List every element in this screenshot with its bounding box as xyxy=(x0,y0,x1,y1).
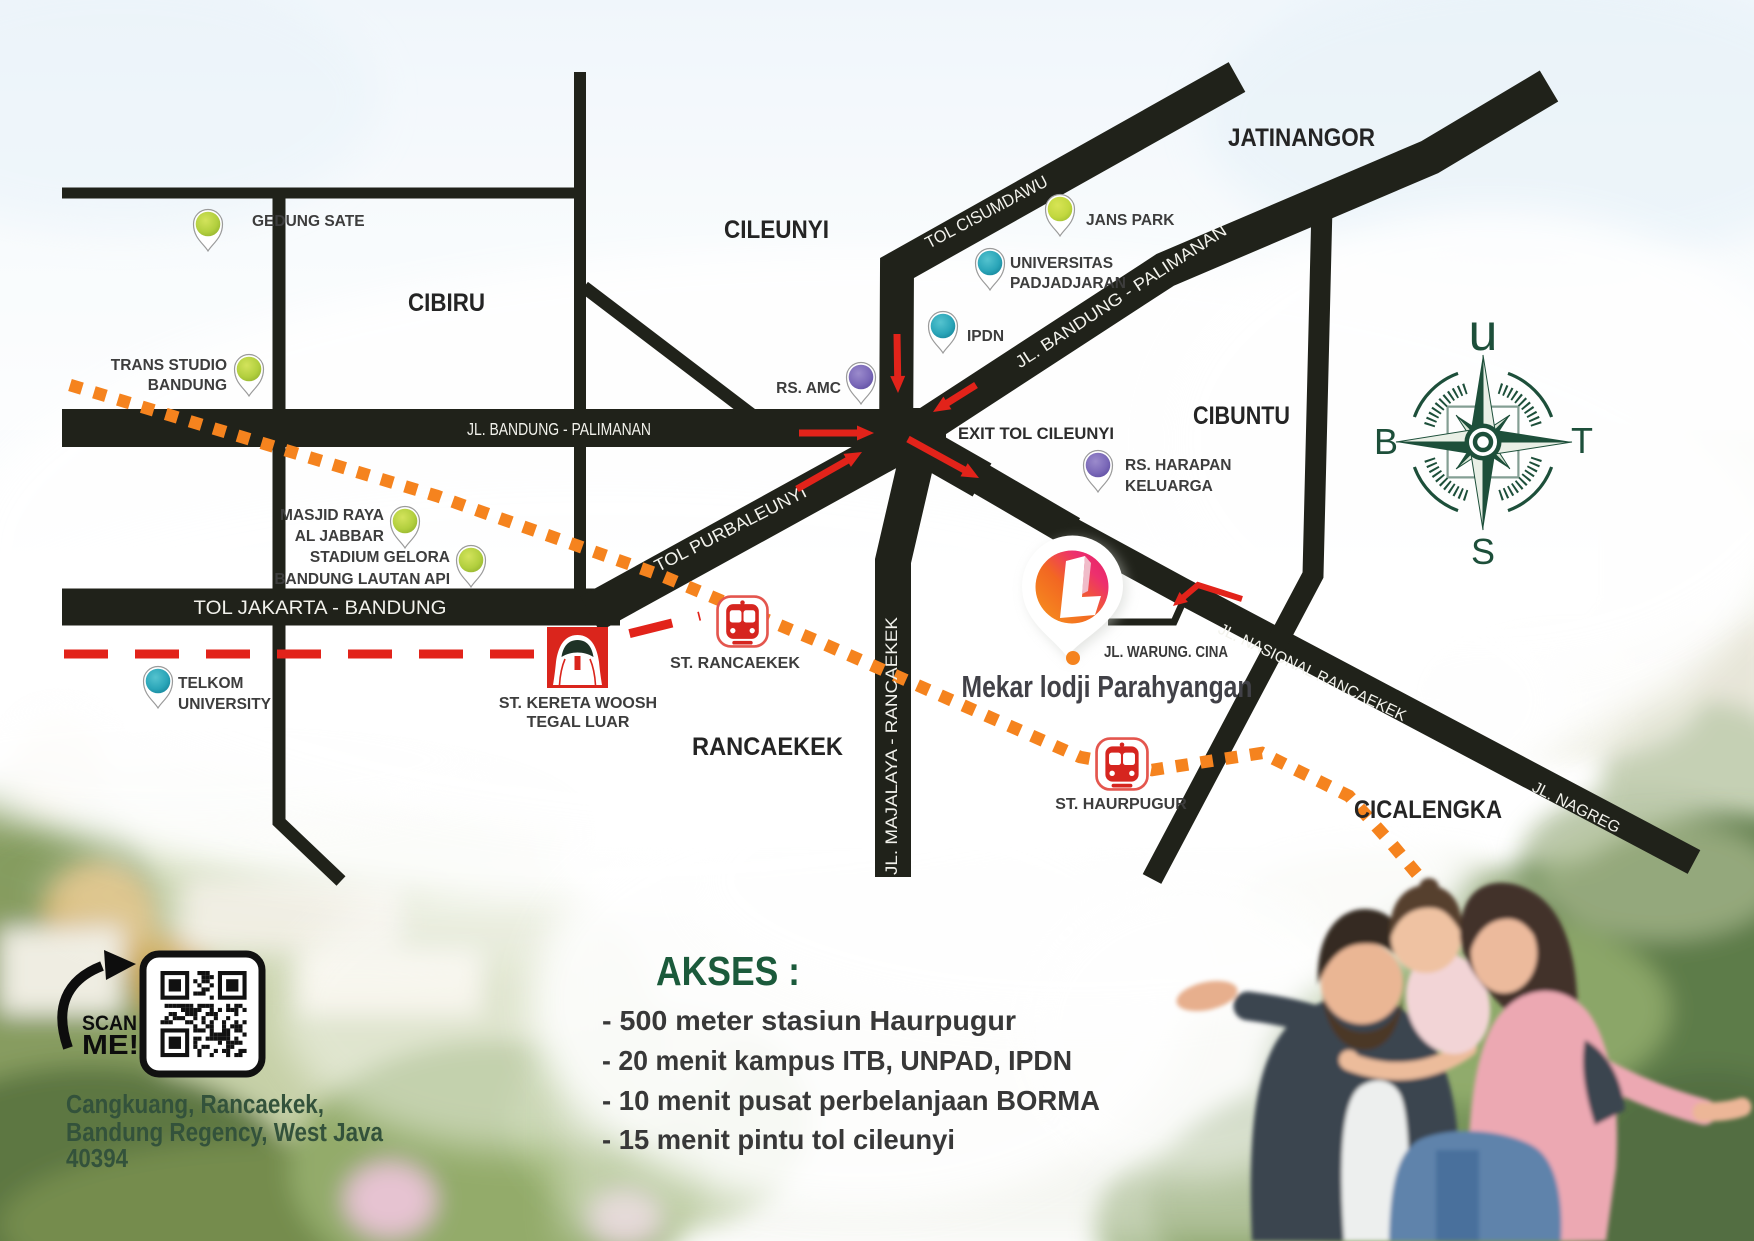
svg-text:UNIVERSITAS: UNIVERSITAS xyxy=(1010,255,1113,272)
svg-text:- 15 menit pintu tol cileunyi: - 15 menit pintu tol cileunyi xyxy=(602,1124,955,1155)
svg-text:B: B xyxy=(1374,421,1398,462)
svg-text:CIBUNTU: CIBUNTU xyxy=(1193,402,1290,430)
svg-text:AL JABBAR: AL JABBAR xyxy=(295,528,384,545)
svg-text:JL. BANDUNG - PALIMANAN: JL. BANDUNG - PALIMANAN xyxy=(467,419,651,439)
svg-text:TELKOM: TELKOM xyxy=(178,675,243,692)
svg-text:PADJADJARAN: PADJADJARAN xyxy=(1010,275,1126,292)
svg-text:TEGAL LUAR: TEGAL LUAR xyxy=(527,714,630,731)
svg-text:KELUARGA: KELUARGA xyxy=(1125,478,1213,495)
svg-text:RS. HARAPAN: RS. HARAPAN xyxy=(1125,457,1232,474)
svg-text:ST. RANCAEKEK: ST. RANCAEKEK xyxy=(670,655,800,672)
svg-text:BANDUNG LAUTAN API: BANDUNG LAUTAN API xyxy=(274,571,450,588)
svg-text:T: T xyxy=(1571,420,1593,461)
svg-text:S: S xyxy=(1471,531,1495,572)
svg-text:MASJID RAYA: MASJID RAYA xyxy=(280,507,384,524)
svg-text:Mekar lodji Parahyangan: Mekar lodji Parahyangan xyxy=(962,669,1253,704)
svg-text:JL. WARUNG. CINA: JL. WARUNG. CINA xyxy=(1104,644,1228,661)
svg-text:Bandung Regency, West Java: Bandung Regency, West Java xyxy=(66,1119,384,1147)
svg-text:BANDUNG: BANDUNG xyxy=(148,377,227,394)
svg-text:JANS PARK: JANS PARK xyxy=(1086,212,1175,229)
svg-text:JATINANGOR: JATINANGOR xyxy=(1228,124,1375,152)
svg-text:- 10 menit pusat perbelanjaan: - 10 menit pusat perbelanjaan BORMA xyxy=(602,1085,1100,1116)
svg-text:UNIVERSITY: UNIVERSITY xyxy=(178,696,272,713)
svg-text:ME!: ME! xyxy=(82,1029,139,1060)
svg-text:40394: 40394 xyxy=(66,1145,129,1173)
svg-text:CIBIRU: CIBIRU xyxy=(408,289,485,317)
svg-text:u: u xyxy=(1469,304,1498,362)
svg-text:CICALENGKA: CICALENGKA xyxy=(1354,796,1502,824)
svg-text:RANCAEKEK: RANCAEKEK xyxy=(692,733,843,761)
svg-text:RS. AMC: RS. AMC xyxy=(776,380,841,397)
svg-text:GEDUNG SATE: GEDUNG SATE xyxy=(252,213,365,230)
svg-text:- 20 menit kampus ITB, UNPAD,: - 20 menit kampus ITB, UNPAD, IPDN xyxy=(602,1045,1072,1076)
svg-text:JL. MAJALAYA - RANCAEKEK: JL. MAJALAYA - RANCAEKEK xyxy=(883,617,901,875)
svg-text:AKSES :: AKSES : xyxy=(656,948,800,994)
svg-text:IPDN: IPDN xyxy=(967,328,1004,345)
svg-text:TOL JAKARTA - BANDUNG: TOL JAKARTA - BANDUNG xyxy=(194,598,447,619)
svg-text:ST. KERETA WOOSH: ST. KERETA WOOSH xyxy=(499,695,657,712)
svg-text:Cangkuang, Rancaekek,: Cangkuang, Rancaekek, xyxy=(66,1091,324,1119)
svg-text:ST. HAURPUGUR: ST. HAURPUGUR xyxy=(1055,796,1187,813)
svg-text:TRANS STUDIO: TRANS STUDIO xyxy=(111,357,227,374)
svg-text:STADIUM GELORA: STADIUM GELORA xyxy=(310,549,450,566)
svg-text:- 500 meter stasiun Haurpugur: - 500 meter stasiun Haurpugur xyxy=(602,1005,1016,1036)
svg-text:CILEUNYI: CILEUNYI xyxy=(724,216,829,244)
svg-text:EXIT TOL CILEUNYI: EXIT TOL CILEUNYI xyxy=(958,424,1114,443)
